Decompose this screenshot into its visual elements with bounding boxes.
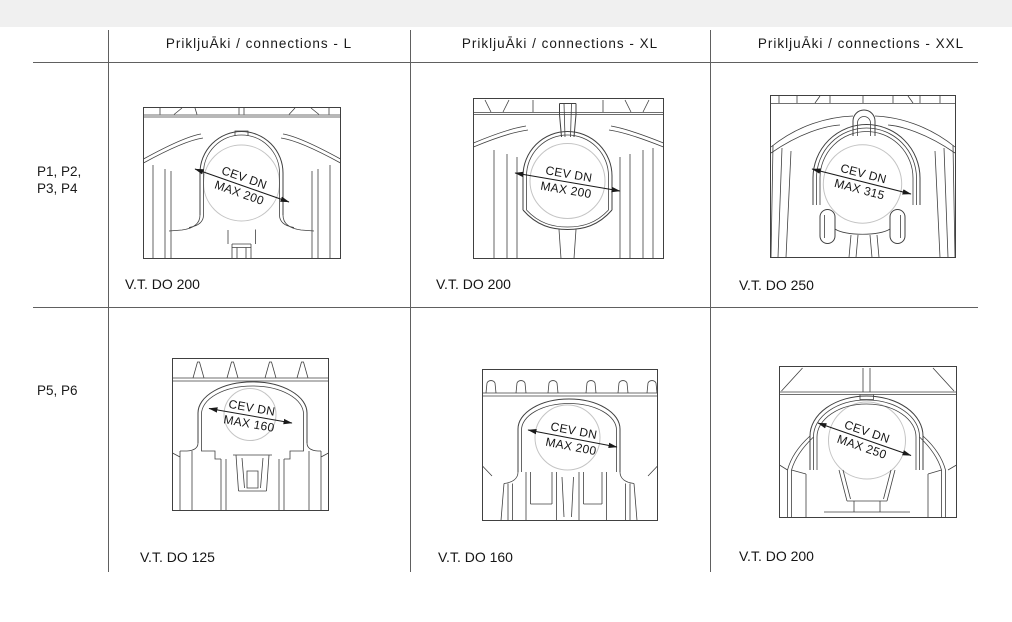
vt-caption-r1-xl: V.T. DO 200: [436, 276, 511, 292]
row-label-p5-p6: P5, P6: [37, 382, 78, 399]
datasheet-page: PrikljuĀki / connections - L PrikljuĀki …: [0, 0, 1012, 622]
vt-caption-r1-xxl: V.T. DO 250: [739, 277, 814, 293]
vt-caption-r1-l: V.T. DO 200: [125, 276, 200, 292]
connection-drawing-r1-l: CEV DN MAX 200: [143, 107, 341, 259]
connection-drawing-r1-xl: CEV DN MAX 200: [473, 98, 664, 259]
row-divider: [33, 307, 978, 308]
header-divider: [33, 62, 978, 63]
connection-drawing-r2-xxl: CEV DN MAX 250: [779, 366, 957, 518]
row-label-p1-p4: P1, P2, P3, P4: [37, 163, 81, 197]
column-divider-2: [410, 30, 411, 572]
column-header-l: PrikljuĀki / connections - L: [108, 36, 410, 56]
connection-drawing-r1-xxl: CEV DN MAX 315: [770, 95, 956, 258]
column-header-xxl: PrikljuĀki / connections - XXL: [710, 36, 1012, 56]
vt-caption-r2-xl: V.T. DO 160: [438, 549, 513, 565]
vt-caption-r2-l: V.T. DO 125: [140, 549, 215, 565]
row-label-line: P3, P4: [37, 180, 81, 197]
column-header-xl: PrikljuĀki / connections - XL: [410, 36, 710, 56]
column-divider-3: [710, 30, 711, 572]
top-gray-band: [0, 0, 1012, 27]
connection-drawing-r2-l: CEV DN MAX 160: [172, 358, 329, 511]
column-divider-1: [108, 30, 109, 572]
connection-drawing-r2-xl: CEV DN MAX 200: [482, 369, 658, 521]
vt-caption-r2-xxl: V.T. DO 200: [739, 548, 814, 564]
row-label-line: P5, P6: [37, 382, 78, 399]
row-label-line: P1, P2,: [37, 163, 81, 180]
